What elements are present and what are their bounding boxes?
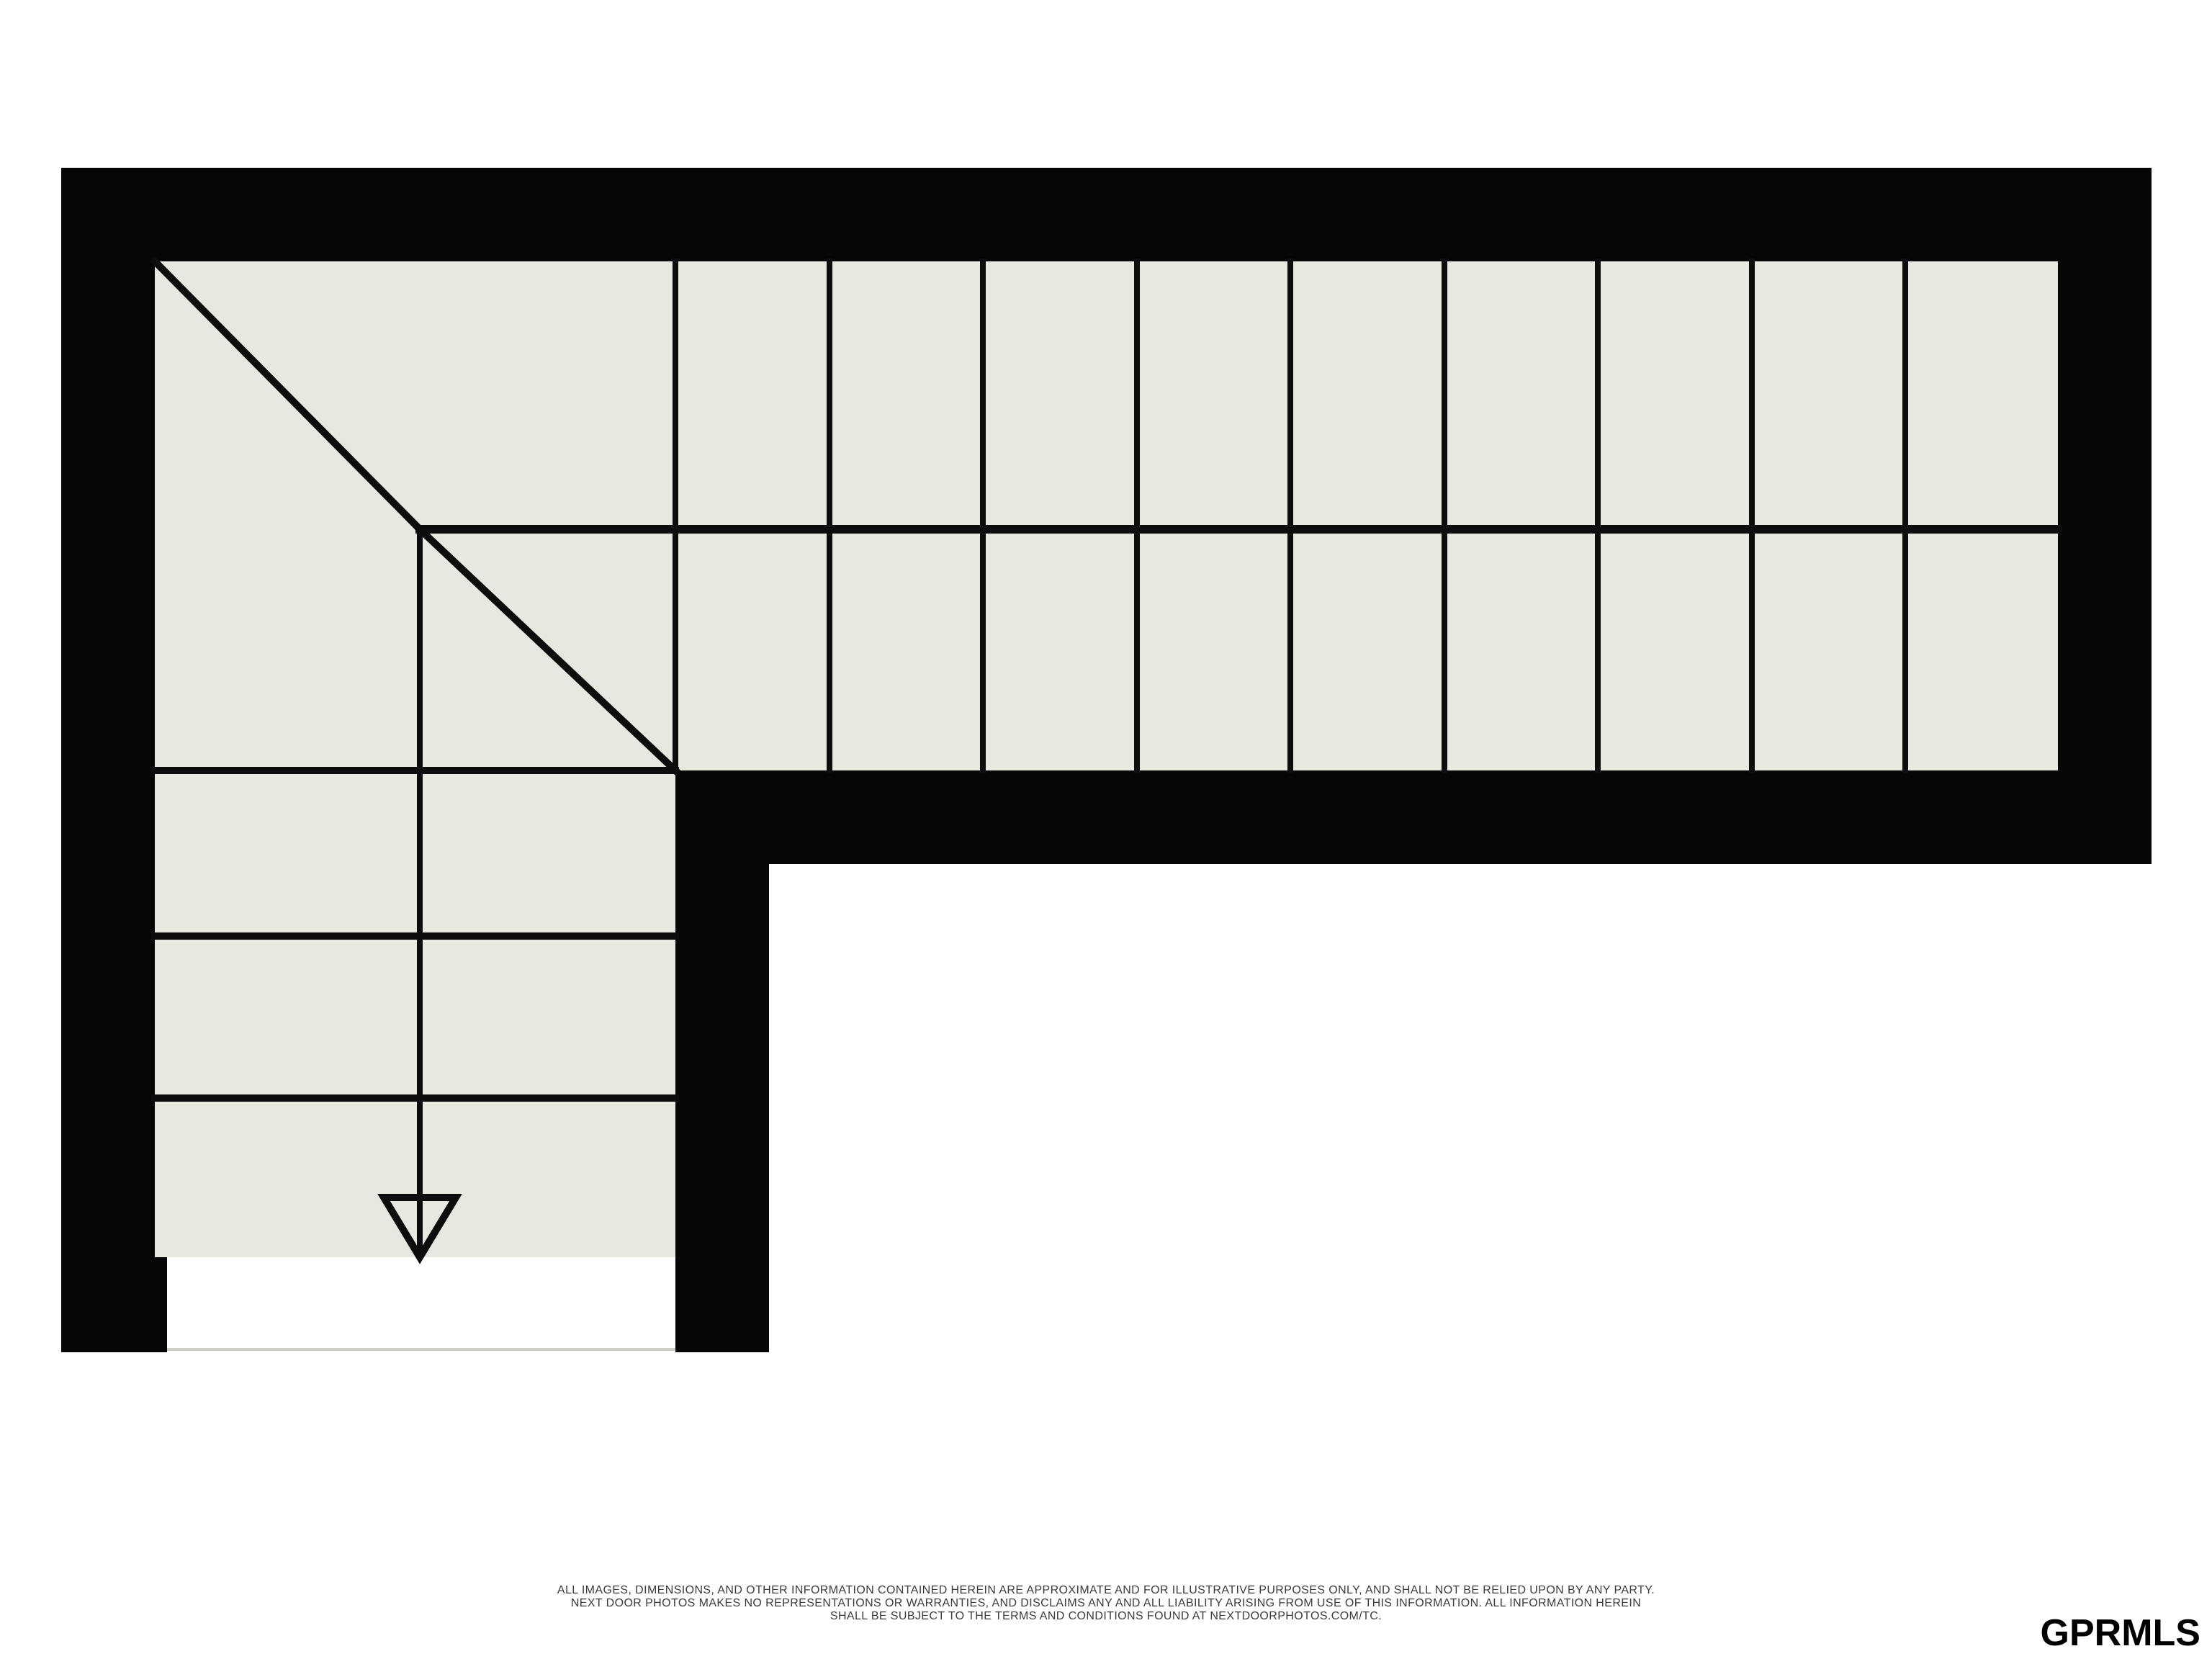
wall-right (2058, 168, 2152, 864)
wall-bottom-upper-run (675, 770, 2152, 864)
wall-left-foot (61, 1257, 167, 1352)
upper-stair-run-floor (155, 261, 2059, 770)
lower-stair-run-floor (155, 770, 675, 1257)
wall-left (61, 168, 155, 1257)
disclaimer-line: ALL IMAGES, DIMENSIONS, AND OTHER INFORM… (0, 1584, 2212, 1597)
floorplan (0, 0, 2212, 1659)
disclaimer-line: SHALL BE SUBJECT TO THE TERMS AND CONDIT… (0, 1610, 2212, 1623)
disclaimer-line: NEXT DOOR PHOTOS MAKES NO REPRESENTATION… (0, 1597, 2212, 1610)
wall-top (61, 168, 2152, 261)
wall-right-lower-run (675, 770, 769, 1352)
mls-watermark: GPRMLS (2041, 1614, 2200, 1652)
disclaimer-text: ALL IMAGES, DIMENSIONS, AND OTHER INFORM… (0, 1584, 2212, 1623)
